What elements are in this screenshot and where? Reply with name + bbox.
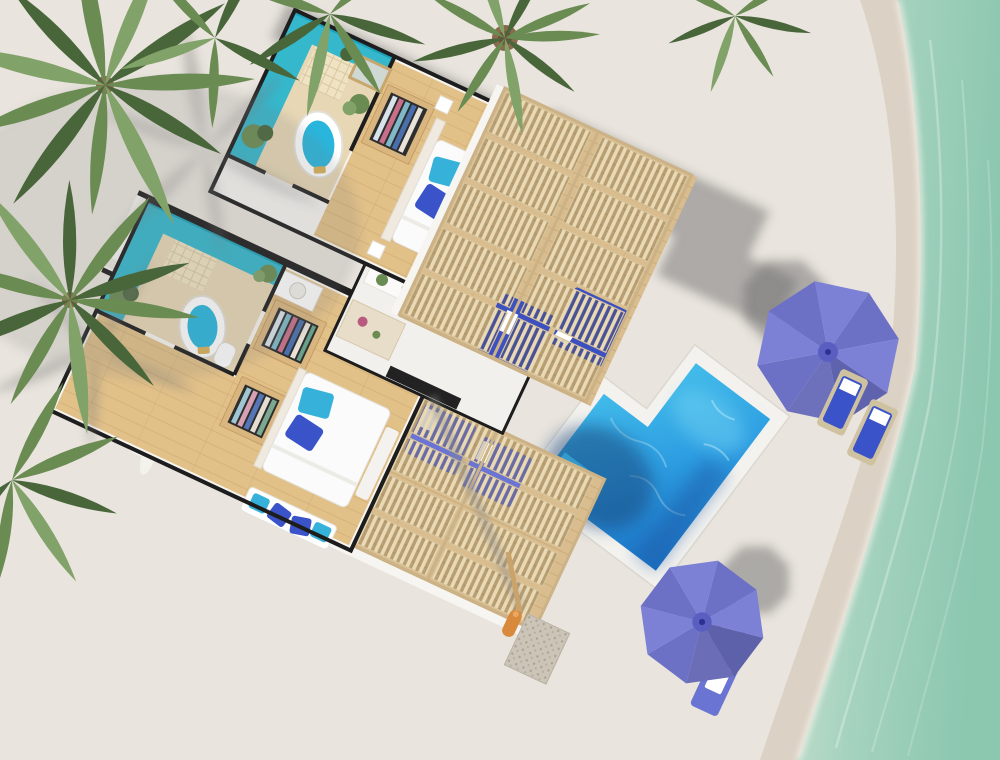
villa-aerial-render bbox=[0, 0, 1000, 760]
scene-canvas bbox=[0, 0, 1000, 760]
